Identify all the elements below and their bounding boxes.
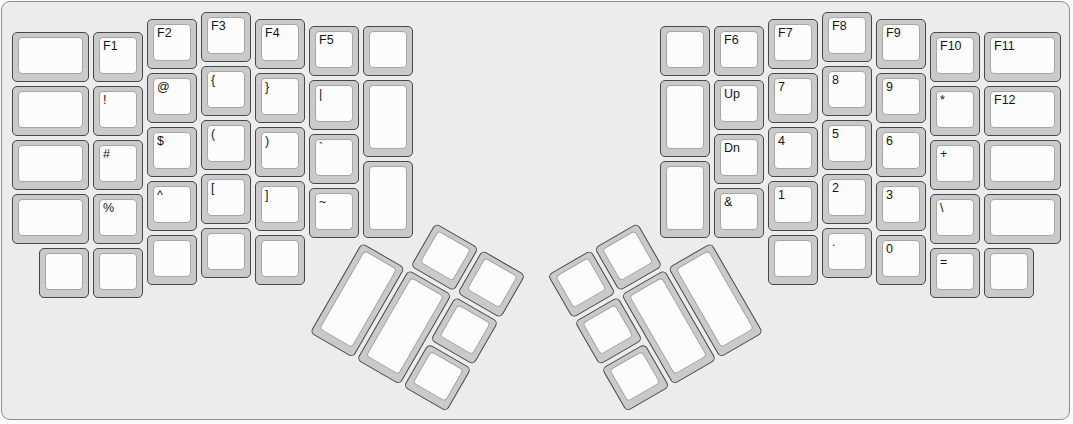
key-up[interactable]: Up bbox=[714, 80, 764, 130]
key-legend: 7 bbox=[778, 80, 808, 94]
key-f7[interactable]: F7 bbox=[768, 19, 818, 69]
key-right-paren[interactable]: ) bbox=[255, 127, 305, 177]
key-blank[interactable] bbox=[201, 228, 251, 278]
keycap-top bbox=[666, 31, 704, 68]
keycap-top: Up bbox=[720, 85, 758, 122]
key-blank[interactable] bbox=[363, 26, 413, 76]
keycap-top: F3 bbox=[207, 17, 245, 54]
keycap-top: & bbox=[720, 193, 758, 230]
keycap-top: 8 bbox=[828, 71, 866, 108]
key-backslash[interactable]: \ bbox=[930, 194, 980, 244]
key-8[interactable]: 8 bbox=[822, 66, 872, 116]
keycap-top: @ bbox=[153, 78, 191, 115]
keycap-top: \ bbox=[936, 199, 974, 236]
key-legend: F3 bbox=[211, 19, 241, 33]
key-legend: F4 bbox=[265, 26, 295, 40]
key-pipe[interactable]: | bbox=[309, 80, 359, 130]
keyboard-layout: F1!#%F2@$^F3{([F4})]F5|`~ F6UpDn&F7741F8… bbox=[0, 0, 1073, 424]
key-f12[interactable]: F12 bbox=[984, 86, 1061, 136]
key-f10[interactable]: F10 bbox=[930, 32, 980, 82]
keycap-top bbox=[990, 145, 1055, 182]
key-blank[interactable] bbox=[984, 248, 1034, 298]
keycap-top bbox=[18, 91, 83, 128]
key-7[interactable]: 7 bbox=[768, 73, 818, 123]
key-blank[interactable] bbox=[12, 140, 89, 190]
key-0[interactable]: 0 bbox=[876, 235, 926, 285]
keycap-top: ! bbox=[99, 91, 137, 128]
keycap-top: F12 bbox=[990, 91, 1055, 128]
keycap-top bbox=[666, 85, 704, 149]
key-legend: F12 bbox=[994, 93, 1051, 107]
key-3[interactable]: 3 bbox=[876, 181, 926, 231]
keycap-top: 3 bbox=[882, 186, 920, 223]
key-f11[interactable]: F11 bbox=[984, 32, 1061, 82]
keycap-top: 1 bbox=[774, 186, 812, 223]
keycap-top: F4 bbox=[261, 24, 299, 61]
key-legend: ! bbox=[103, 93, 133, 107]
key-tilde[interactable]: ~ bbox=[309, 188, 359, 238]
keycap-top bbox=[18, 199, 83, 236]
key-blank[interactable] bbox=[12, 32, 89, 82]
key-6[interactable]: 6 bbox=[876, 127, 926, 177]
keycap-top bbox=[45, 253, 83, 290]
key-legend: @ bbox=[157, 80, 187, 94]
keycap-top: } bbox=[261, 78, 299, 115]
key-blank[interactable] bbox=[39, 248, 89, 298]
keycap-top: F2 bbox=[153, 24, 191, 61]
keycap-top bbox=[207, 233, 245, 270]
keycap-top: F11 bbox=[990, 37, 1055, 74]
keycap-top bbox=[369, 31, 407, 68]
keycap-top: 4 bbox=[774, 132, 812, 169]
key-legend: 8 bbox=[832, 73, 862, 87]
keycap-top: ^ bbox=[153, 186, 191, 223]
keycap-top bbox=[369, 85, 407, 149]
keycap-top bbox=[261, 240, 299, 277]
key-legend: $ bbox=[157, 134, 187, 148]
key-2[interactable]: 2 bbox=[822, 174, 872, 224]
key-blank[interactable] bbox=[984, 140, 1061, 190]
key-right-bracket[interactable]: ] bbox=[255, 181, 305, 231]
key-left-paren[interactable]: ( bbox=[201, 120, 251, 170]
key-legend: F10 bbox=[940, 39, 970, 53]
key-caret[interactable]: ^ bbox=[147, 181, 197, 231]
keycap-top bbox=[18, 145, 83, 182]
key-legend: Up bbox=[724, 87, 754, 101]
key-legend: = bbox=[940, 255, 970, 269]
key-blank[interactable] bbox=[255, 235, 305, 285]
key-blank[interactable] bbox=[93, 248, 143, 298]
keycap-top: 5 bbox=[828, 125, 866, 162]
key-legend: & bbox=[724, 195, 754, 209]
key-legend: ~ bbox=[319, 195, 349, 209]
key-blank[interactable] bbox=[12, 194, 89, 244]
key-f2[interactable]: F2 bbox=[147, 19, 197, 69]
keycap-top: . bbox=[828, 233, 866, 270]
key-exclamation[interactable]: ! bbox=[93, 86, 143, 136]
key-legend: Dn bbox=[724, 141, 754, 155]
key-legend: 6 bbox=[886, 134, 916, 148]
key-legend: [ bbox=[211, 181, 241, 195]
keycap-top: Dn bbox=[720, 139, 758, 176]
keycap-top: F6 bbox=[720, 31, 758, 68]
keycap-top: F5 bbox=[315, 31, 353, 68]
key-legend: F2 bbox=[157, 26, 187, 40]
key-hash[interactable]: # bbox=[93, 140, 143, 190]
key-blank[interactable] bbox=[768, 235, 818, 285]
key-left-brace[interactable]: { bbox=[201, 66, 251, 116]
key-period[interactable]: . bbox=[822, 228, 872, 278]
key-legend: \ bbox=[940, 201, 970, 215]
keycap-top: 0 bbox=[882, 240, 920, 277]
keycap-top: # bbox=[99, 145, 137, 182]
key-f4[interactable]: F4 bbox=[255, 19, 305, 69]
key-5[interactable]: 5 bbox=[822, 120, 872, 170]
key-legend: + bbox=[940, 147, 970, 161]
key-legend: { bbox=[211, 73, 241, 87]
key-legend: F9 bbox=[886, 26, 916, 40]
key-legend: 4 bbox=[778, 134, 808, 148]
key-at[interactable]: @ bbox=[147, 73, 197, 123]
key-legend: 9 bbox=[886, 80, 916, 94]
keycap-top bbox=[153, 240, 191, 277]
key-legend: ) bbox=[265, 134, 295, 148]
keycap-top: ( bbox=[207, 125, 245, 162]
keycap-top: 7 bbox=[774, 78, 812, 115]
keycap-top: $ bbox=[153, 132, 191, 169]
key-legend: ] bbox=[265, 188, 295, 202]
key-blank[interactable] bbox=[660, 161, 710, 238]
keycap-top: = bbox=[936, 253, 974, 290]
key-f6[interactable]: F6 bbox=[714, 26, 764, 76]
keycap-top: | bbox=[315, 85, 353, 122]
key-f9[interactable]: F9 bbox=[876, 19, 926, 69]
key-left-bracket[interactable]: [ bbox=[201, 174, 251, 224]
keycap-top bbox=[990, 199, 1055, 236]
key-legend: F1 bbox=[103, 39, 133, 53]
key-blank[interactable] bbox=[660, 80, 710, 157]
key-down[interactable]: Dn bbox=[714, 134, 764, 184]
key-blank[interactable] bbox=[12, 86, 89, 136]
key-blank[interactable] bbox=[660, 26, 710, 76]
key-legend: | bbox=[319, 87, 349, 101]
key-legend: F6 bbox=[724, 33, 754, 47]
keycap-top bbox=[990, 253, 1028, 290]
keycap-top: F7 bbox=[774, 24, 812, 61]
key-legend: ( bbox=[211, 127, 241, 141]
keycap-top: ] bbox=[261, 186, 299, 223]
keycap-top: ` bbox=[315, 139, 353, 176]
key-blank[interactable] bbox=[147, 235, 197, 285]
key-legend: F8 bbox=[832, 19, 862, 33]
keycap-top: F1 bbox=[99, 37, 137, 74]
key-ampersand[interactable]: & bbox=[714, 188, 764, 238]
keycap-top bbox=[369, 166, 407, 230]
keycap-top: F10 bbox=[936, 37, 974, 74]
keycap-top: ~ bbox=[315, 193, 353, 230]
keycap-top: 9 bbox=[882, 78, 920, 115]
key-legend: % bbox=[103, 201, 133, 215]
key-right-brace[interactable]: } bbox=[255, 73, 305, 123]
keycap-top: F8 bbox=[828, 17, 866, 54]
key-legend: 1 bbox=[778, 188, 808, 202]
keycap-top: [ bbox=[207, 179, 245, 216]
keycap-top: 6 bbox=[882, 132, 920, 169]
key-blank[interactable] bbox=[984, 194, 1061, 244]
keycap-top: % bbox=[99, 199, 137, 236]
keycap-top: * bbox=[936, 91, 974, 128]
key-legend: 5 bbox=[832, 127, 862, 141]
keycap-top: 2 bbox=[828, 179, 866, 216]
key-backtick[interactable]: ` bbox=[309, 134, 359, 184]
key-legend: 3 bbox=[886, 188, 916, 202]
key-legend: * bbox=[940, 93, 970, 107]
key-legend: } bbox=[265, 80, 295, 94]
keycap-top bbox=[18, 37, 83, 74]
key-dollar[interactable]: $ bbox=[147, 127, 197, 177]
keycap-top bbox=[99, 253, 137, 290]
key-f8[interactable]: F8 bbox=[822, 12, 872, 62]
key-f5[interactable]: F5 bbox=[309, 26, 359, 76]
key-4[interactable]: 4 bbox=[768, 127, 818, 177]
key-legend: F11 bbox=[994, 39, 1051, 53]
key-legend: ^ bbox=[157, 188, 187, 202]
key-f3[interactable]: F3 bbox=[201, 12, 251, 62]
keycap-top: + bbox=[936, 145, 974, 182]
key-blank[interactable] bbox=[363, 80, 413, 157]
keycap-top: ) bbox=[261, 132, 299, 169]
key-1[interactable]: 1 bbox=[768, 181, 818, 231]
keycap-top bbox=[774, 240, 812, 277]
key-legend: 0 bbox=[886, 242, 916, 256]
key-legend: ` bbox=[319, 141, 349, 155]
key-legend: . bbox=[832, 235, 862, 249]
key-legend: 2 bbox=[832, 181, 862, 195]
keycap-top: { bbox=[207, 71, 245, 108]
key-legend: # bbox=[103, 147, 133, 161]
key-percent[interactable]: % bbox=[93, 194, 143, 244]
keycap-top bbox=[666, 166, 704, 230]
key-blank[interactable] bbox=[363, 161, 413, 238]
key-legend: F5 bbox=[319, 33, 349, 47]
key-asterisk[interactable]: * bbox=[930, 86, 980, 136]
keycap-top: F9 bbox=[882, 24, 920, 61]
key-equals[interactable]: = bbox=[930, 248, 980, 298]
key-9[interactable]: 9 bbox=[876, 73, 926, 123]
key-legend: F7 bbox=[778, 26, 808, 40]
key-f1[interactable]: F1 bbox=[93, 32, 143, 82]
key-plus[interactable]: + bbox=[930, 140, 980, 190]
